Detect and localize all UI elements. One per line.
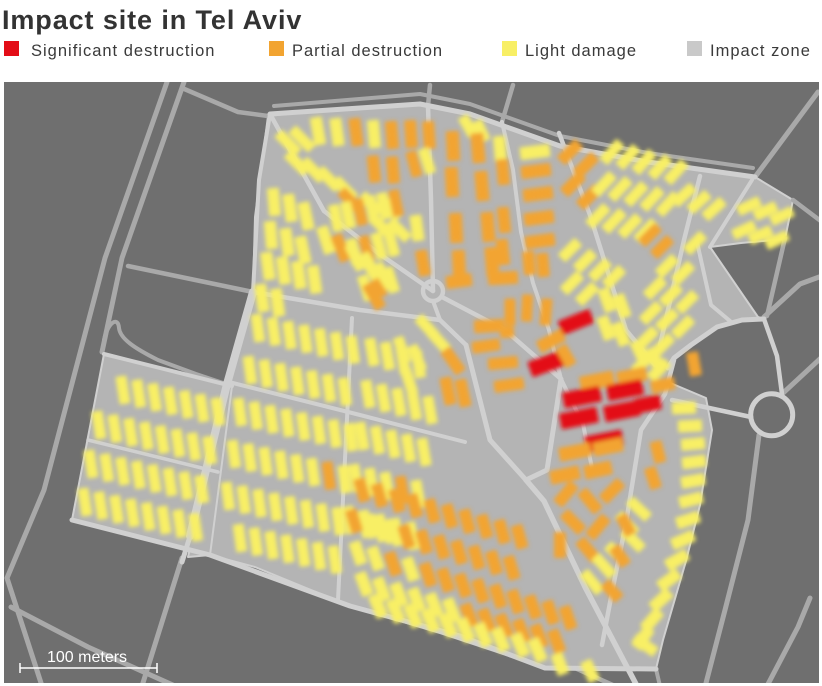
svg-text:Impact site in Tel Aviv: Impact site in Tel Aviv (2, 5, 302, 35)
svg-text:Impact zone: Impact zone (710, 42, 811, 60)
svg-text:Significant destruction: Significant destruction (31, 42, 215, 60)
svg-text:100 meters: 100 meters (47, 649, 127, 666)
svg-text:Partial destruction: Partial destruction (292, 42, 443, 60)
svg-text:Light damage: Light damage (525, 42, 637, 60)
